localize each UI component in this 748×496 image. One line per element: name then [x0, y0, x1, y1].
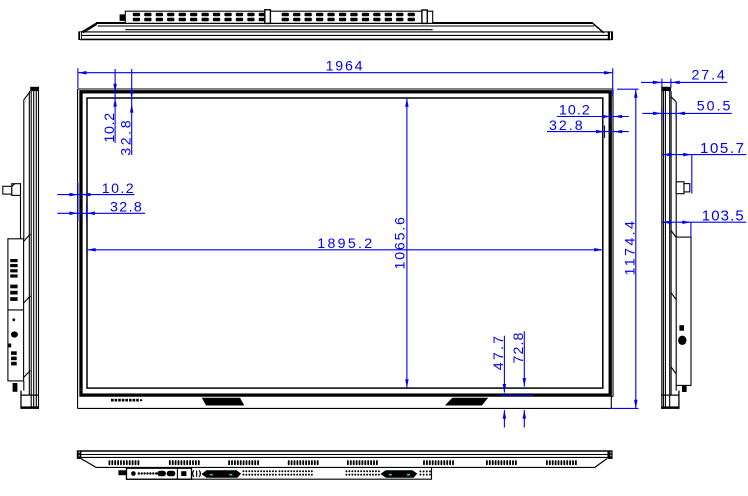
svg-text:1964: 1964 — [326, 59, 365, 75]
svg-text:10.2: 10.2 — [102, 181, 135, 197]
svg-text:50.5: 50.5 — [697, 99, 733, 115]
svg-text:1895.2: 1895.2 — [317, 236, 374, 252]
svg-text:32.8: 32.8 — [119, 118, 135, 156]
svg-text:47.7: 47.7 — [491, 334, 507, 370]
svg-text:1065.6: 1065.6 — [393, 215, 409, 269]
svg-text:105.7: 105.7 — [700, 140, 746, 157]
svg-text:72.8: 72.8 — [511, 331, 527, 363]
svg-text:27.4: 27.4 — [692, 68, 727, 84]
svg-text:32.8: 32.8 — [549, 118, 585, 134]
svg-text:10.2: 10.2 — [559, 103, 591, 119]
svg-text:103.5: 103.5 — [702, 207, 745, 224]
svg-text:10.2: 10.2 — [102, 112, 118, 142]
svg-text:1174.4: 1174.4 — [622, 219, 638, 276]
svg-text:32.8: 32.8 — [110, 200, 143, 216]
